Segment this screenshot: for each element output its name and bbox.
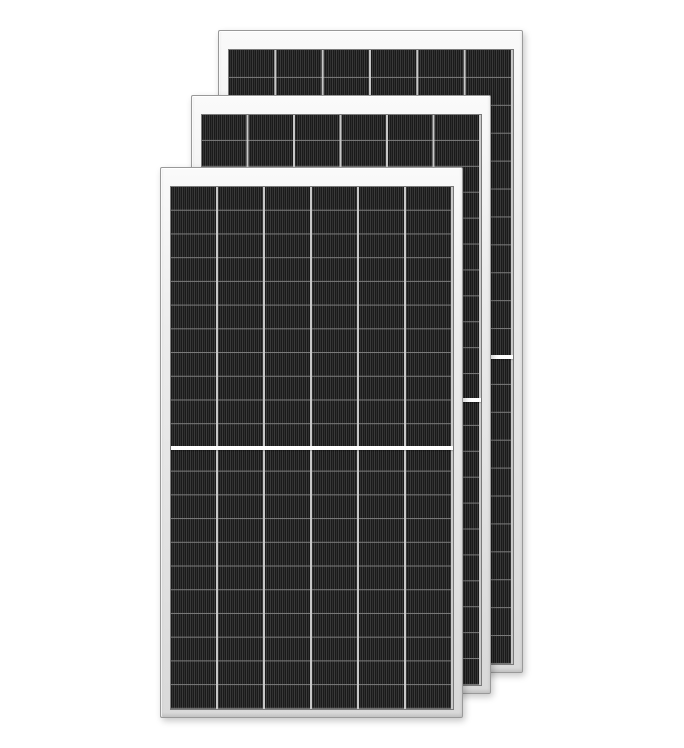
solar-panel-front <box>160 167 463 718</box>
product-image <box>0 0 684 748</box>
panel-cell-grid <box>170 186 454 710</box>
half-cell-divider <box>171 446 453 450</box>
